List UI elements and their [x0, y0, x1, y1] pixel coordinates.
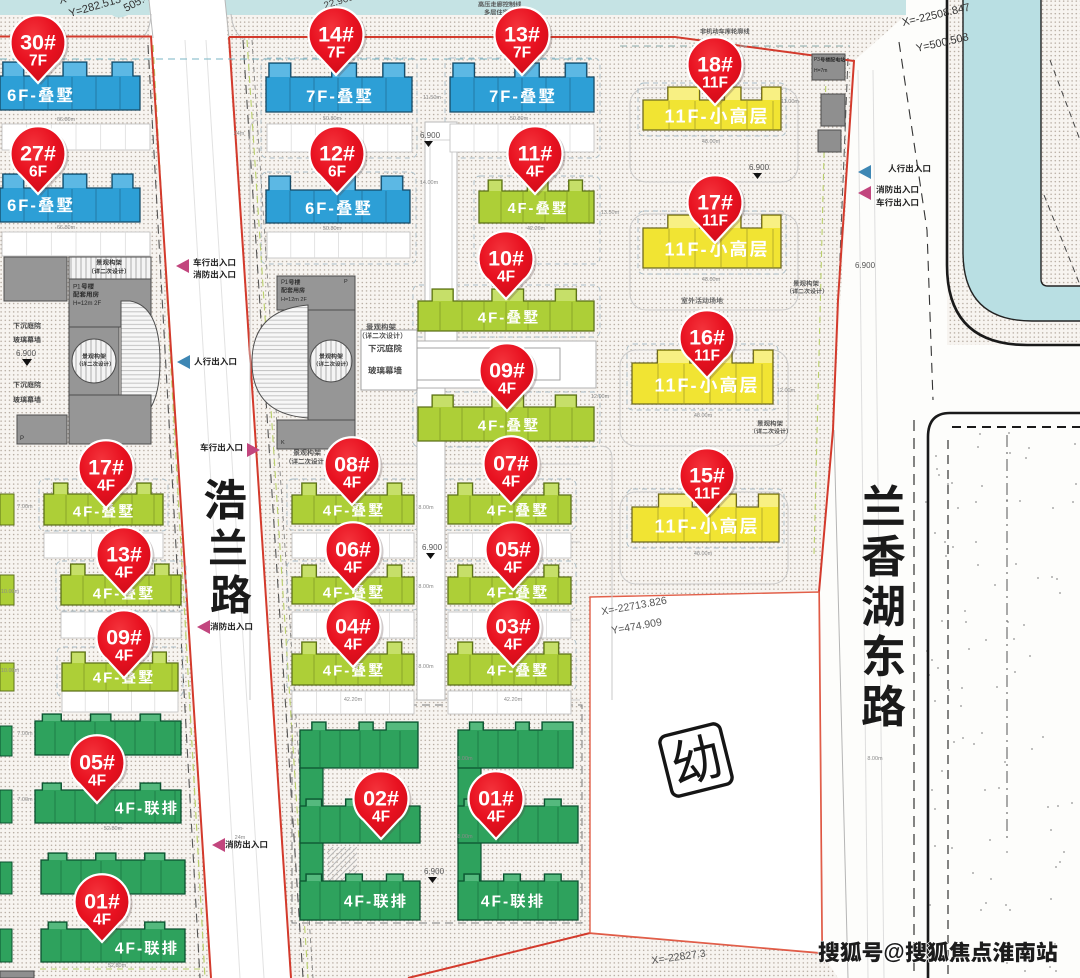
- svg-text:4F-: 4F-: [478, 417, 507, 434]
- svg-text:42.20m: 42.20m: [504, 697, 523, 703]
- svg-text:6.900: 6.900: [422, 543, 443, 552]
- svg-text:4F: 4F: [115, 648, 133, 665]
- svg-text:10#: 10#: [488, 247, 524, 271]
- svg-text:11#: 11#: [518, 142, 553, 166]
- svg-text:11F-: 11F-: [655, 517, 699, 537]
- svg-text:H=7m: H=7m: [814, 68, 827, 74]
- svg-text:07#: 07#: [493, 452, 529, 476]
- svg-text:02#: 02#: [363, 787, 399, 811]
- svg-text:04#: 04#: [335, 615, 371, 639]
- svg-text:12.00m: 12.00m: [591, 394, 610, 400]
- svg-text:4F-: 4F-: [481, 894, 510, 911]
- svg-text:4F: 4F: [497, 269, 515, 286]
- svg-text:6.900: 6.900: [424, 867, 445, 876]
- svg-text:4F-: 4F-: [73, 503, 102, 520]
- svg-text:01#: 01#: [84, 890, 120, 914]
- svg-text:14#: 14#: [318, 23, 354, 47]
- svg-text:12.00m: 12.00m: [777, 388, 796, 394]
- svg-text:8.00m: 8.00m: [418, 664, 434, 670]
- svg-text:42.20m: 42.20m: [344, 697, 363, 703]
- svg-text:4F: 4F: [97, 478, 115, 495]
- svg-text:7.00m: 7.00m: [17, 797, 33, 803]
- svg-text:4F: 4F: [372, 809, 390, 826]
- svg-text:6F: 6F: [29, 164, 47, 181]
- svg-text:11.00m: 11.00m: [781, 99, 799, 105]
- svg-text:11F: 11F: [702, 213, 728, 230]
- svg-text:24m: 24m: [234, 131, 245, 137]
- svg-text:30#: 30#: [20, 31, 56, 55]
- svg-text:66.80m: 66.80m: [57, 225, 76, 231]
- svg-text:6F-: 6F-: [305, 200, 336, 218]
- svg-text:6.900: 6.900: [749, 163, 770, 172]
- svg-text:@: @: [883, 939, 904, 964]
- svg-text:P: P: [20, 436, 24, 442]
- svg-text:17#: 17#: [697, 191, 733, 215]
- svg-text:4F-: 4F-: [344, 894, 373, 911]
- svg-text:4F: 4F: [344, 637, 362, 654]
- svg-text:4F-: 4F-: [115, 801, 144, 818]
- svg-text:50.80m: 50.80m: [510, 116, 529, 122]
- svg-text:16#: 16#: [689, 326, 725, 350]
- svg-text:12#: 12#: [319, 142, 355, 166]
- svg-text:13#: 13#: [106, 543, 142, 567]
- svg-text:6F-: 6F-: [7, 197, 38, 215]
- svg-text:4F: 4F: [498, 381, 516, 398]
- svg-text:05#: 05#: [79, 751, 115, 775]
- svg-text:4F-: 4F-: [478, 309, 507, 326]
- svg-text:09#: 09#: [489, 359, 525, 383]
- svg-text:6F-: 6F-: [7, 87, 38, 105]
- svg-text:4F: 4F: [502, 474, 520, 491]
- svg-text:03#: 03#: [495, 615, 531, 639]
- svg-text:4F: 4F: [487, 809, 505, 826]
- svg-text:08#: 08#: [334, 453, 370, 477]
- svg-text:4F: 4F: [344, 560, 362, 577]
- svg-text:7F: 7F: [513, 45, 531, 62]
- svg-text:14.00m: 14.00m: [420, 180, 439, 186]
- svg-text:11F: 11F: [702, 75, 728, 92]
- svg-text:27#: 27#: [20, 142, 56, 166]
- svg-text:8.00m: 8.00m: [418, 505, 434, 511]
- svg-text:11F-: 11F-: [665, 240, 709, 260]
- svg-text:48.00m: 48.00m: [694, 413, 713, 419]
- svg-text:7F: 7F: [327, 45, 345, 62]
- svg-text:48.00m: 48.00m: [702, 277, 721, 283]
- svg-text:6.900: 6.900: [855, 261, 876, 270]
- svg-text:05#: 05#: [495, 538, 531, 562]
- svg-text:P: P: [344, 279, 348, 285]
- svg-text:24m: 24m: [235, 835, 246, 841]
- svg-text:7F: 7F: [29, 53, 47, 70]
- svg-text:4F: 4F: [88, 773, 106, 790]
- svg-text:6.900: 6.900: [420, 131, 441, 140]
- svg-text:18#: 18#: [697, 53, 733, 77]
- svg-text:50.80m: 50.80m: [323, 226, 342, 232]
- svg-text:66.80m: 66.80m: [57, 117, 76, 123]
- svg-text:4F: 4F: [504, 637, 522, 654]
- svg-text:8.00m: 8.00m: [457, 756, 473, 762]
- svg-text:13#: 13#: [504, 23, 540, 47]
- svg-text:50.80m: 50.80m: [323, 116, 342, 122]
- svg-text:8.00m: 8.00m: [867, 756, 883, 762]
- svg-text:1: 1: [77, 283, 81, 290]
- svg-text:13.50m: 13.50m: [601, 210, 620, 216]
- svg-text:4F: 4F: [526, 164, 544, 181]
- svg-text:8.00m: 8.00m: [418, 584, 434, 590]
- svg-text:7F-: 7F-: [489, 88, 520, 106]
- svg-text:H=12m 2F: H=12m 2F: [281, 297, 307, 303]
- svg-text:48.00m: 48.00m: [694, 551, 713, 557]
- svg-text:6F: 6F: [328, 164, 346, 181]
- svg-text:H=12m 2F: H=12m 2F: [73, 301, 102, 307]
- svg-text:7.00m: 7.00m: [17, 731, 33, 737]
- svg-text:6.900: 6.900: [16, 349, 37, 358]
- svg-text:11F-: 11F-: [665, 107, 709, 127]
- svg-text:17#: 17#: [88, 456, 124, 480]
- svg-text:3: 3: [817, 57, 820, 63]
- svg-text:4F-: 4F-: [115, 941, 144, 958]
- svg-text:4F: 4F: [115, 565, 133, 582]
- svg-text:4F: 4F: [343, 475, 361, 492]
- svg-text:11F: 11F: [694, 486, 720, 503]
- svg-text:10.00m: 10.00m: [1, 589, 20, 595]
- svg-text:15#: 15#: [689, 464, 725, 488]
- svg-text:4F: 4F: [504, 560, 522, 577]
- svg-text:K: K: [281, 440, 285, 446]
- svg-text:4F: 4F: [93, 912, 111, 929]
- svg-text:11F-: 11F-: [655, 376, 699, 396]
- svg-text:7.00m: 7.00m: [17, 504, 33, 510]
- svg-text:52.80m: 52.80m: [108, 963, 127, 969]
- svg-text:8.00m: 8.00m: [457, 834, 473, 840]
- svg-text:06#: 06#: [335, 538, 371, 562]
- svg-text:4F-: 4F-: [323, 662, 352, 679]
- svg-text:11F: 11F: [694, 348, 720, 365]
- svg-text:7F-: 7F-: [306, 88, 337, 106]
- svg-text:4F-: 4F-: [508, 201, 536, 217]
- svg-text:52.80m: 52.80m: [104, 826, 123, 832]
- svg-text:09#: 09#: [106, 626, 142, 650]
- svg-text:4F-: 4F-: [323, 502, 352, 519]
- svg-text:01#: 01#: [478, 787, 514, 811]
- svg-text:42.20m: 42.20m: [527, 226, 546, 232]
- svg-text:10.00m: 10.00m: [1, 668, 20, 674]
- svg-text:48.00m: 48.00m: [702, 139, 721, 145]
- svg-text:11.50m: 11.50m: [423, 95, 441, 101]
